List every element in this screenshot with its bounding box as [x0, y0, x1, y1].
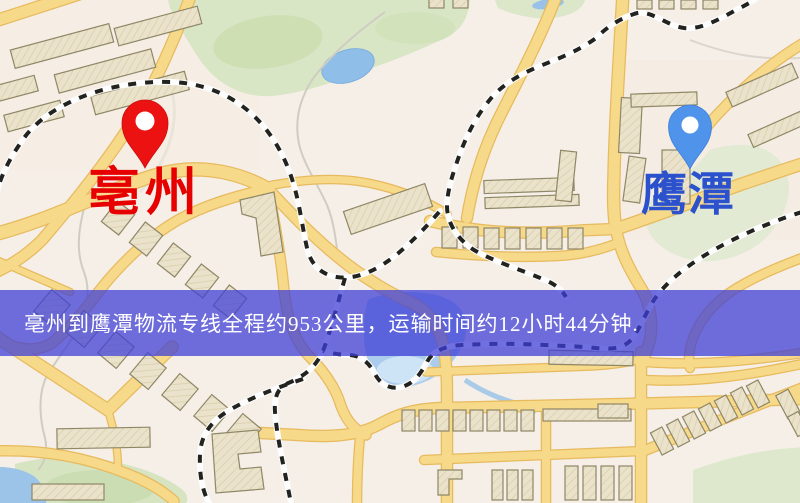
origin-label: 亳州 [88, 168, 202, 220]
route-banner: 亳州到鹰潭物流专线全程约953公里，运输时间约12小时44分钟. [0, 290, 800, 356]
map-screenshot: 亳州 鹰潭 亳州到鹰潭物流专线全程约953公里，运输时间约12小时44分钟. [0, 0, 800, 503]
destination-label: 鹰潭 [641, 172, 735, 218]
route-banner-text: 亳州到鹰潭物流专线全程约953公里，运输时间约12小时44分钟. [0, 308, 639, 338]
map-canvas[interactable] [0, 0, 800, 503]
